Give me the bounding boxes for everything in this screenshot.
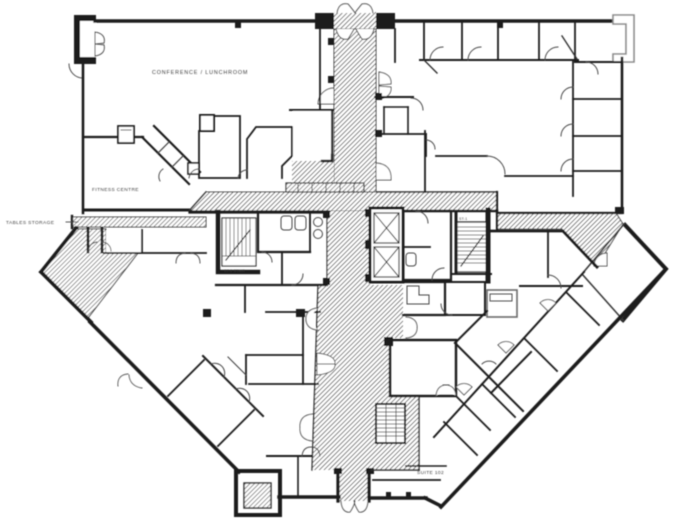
svg-text:SUITE 102: SUITE 102 <box>417 470 444 476</box>
svg-text:TABLES STORAGE: TABLES STORAGE <box>6 220 54 226</box>
svg-text:CONFERENCE / LUNCHROOM: CONFERENCE / LUNCHROOM <box>152 70 248 76</box>
svg-text:ST-1: ST-1 <box>459 217 467 221</box>
svg-text:ST-2 STAIR: ST-2 STAIR <box>224 269 245 273</box>
svg-text:FITNESS CENTRE: FITNESS CENTRE <box>92 187 139 193</box>
